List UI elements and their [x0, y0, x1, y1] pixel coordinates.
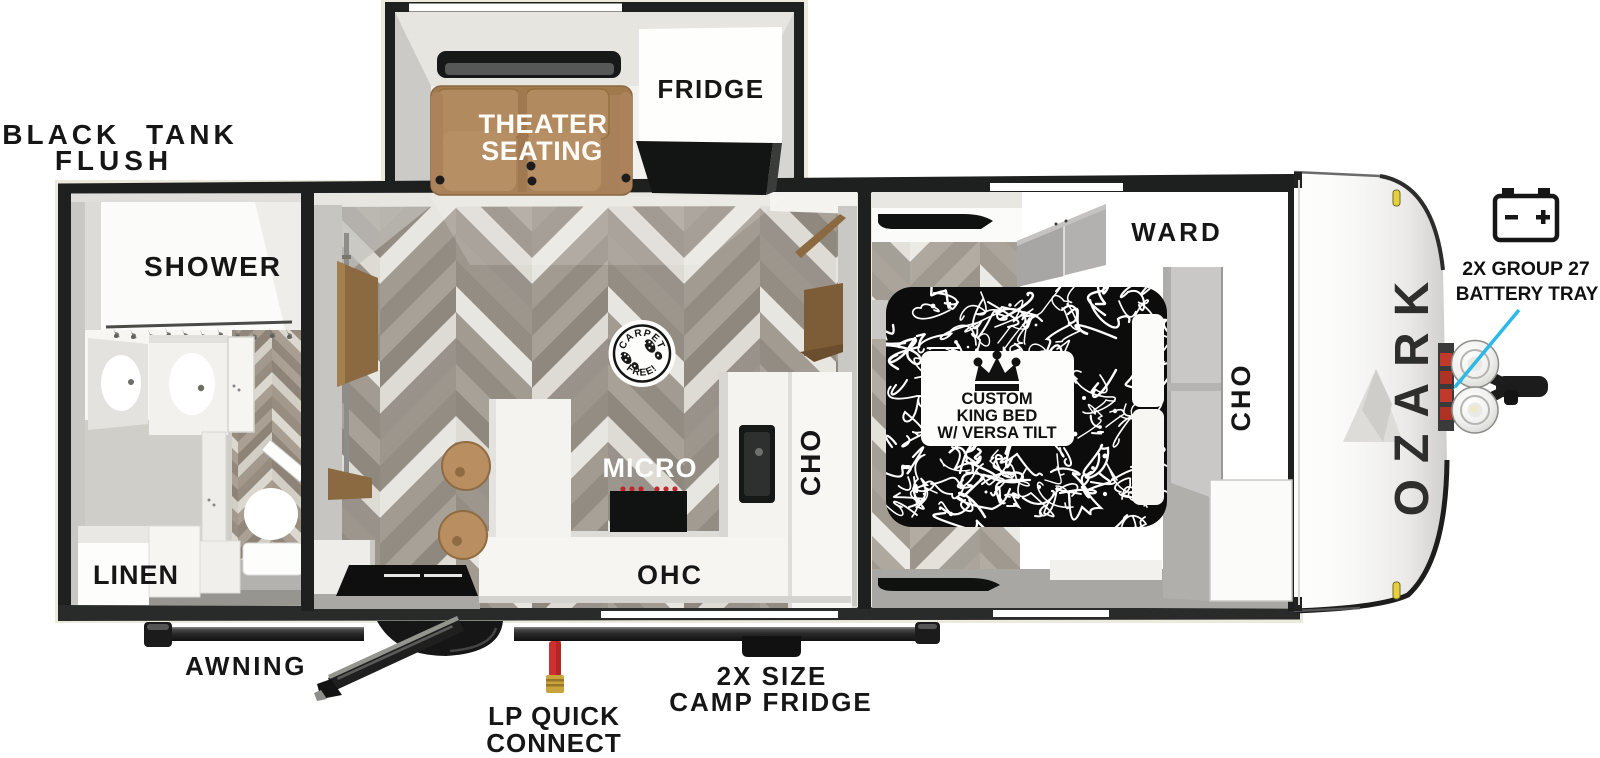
- svg-text:LP QUICK: LP QUICK: [488, 701, 620, 731]
- svg-text:BATTERY TRAY: BATTERY TRAY: [1456, 284, 1599, 305]
- svg-text:THEATER: THEATER: [479, 109, 608, 139]
- svg-text:CONNECT: CONNECT: [486, 728, 622, 758]
- svg-text:CHO: CHO: [795, 428, 826, 496]
- svg-text:LINEN: LINEN: [93, 560, 179, 590]
- svg-text:W/ VERSA TILT: W/ VERSA TILT: [937, 424, 1056, 442]
- svg-text:OHC: OHC: [637, 560, 703, 590]
- svg-text:2X GROUP 27: 2X GROUP 27: [1462, 258, 1590, 280]
- svg-text:WARD: WARD: [1131, 217, 1222, 247]
- svg-text:AWNING: AWNING: [185, 651, 307, 681]
- svg-text:CUSTOM: CUSTOM: [961, 390, 1032, 408]
- svg-text:SEATING: SEATING: [481, 136, 603, 166]
- svg-text:SHOWER: SHOWER: [144, 251, 282, 282]
- svg-text:MICRO: MICRO: [603, 453, 698, 483]
- svg-text:CHO: CHO: [1226, 363, 1256, 432]
- svg-text:CAMP FRIDGE: CAMP FRIDGE: [669, 687, 873, 717]
- svg-text:KING BED: KING BED: [957, 407, 1038, 425]
- svg-text:OZARK: OZARK: [1386, 266, 1439, 517]
- svg-text:FRIDGE: FRIDGE: [657, 74, 764, 104]
- svg-text:FLUSH: FLUSH: [55, 145, 173, 176]
